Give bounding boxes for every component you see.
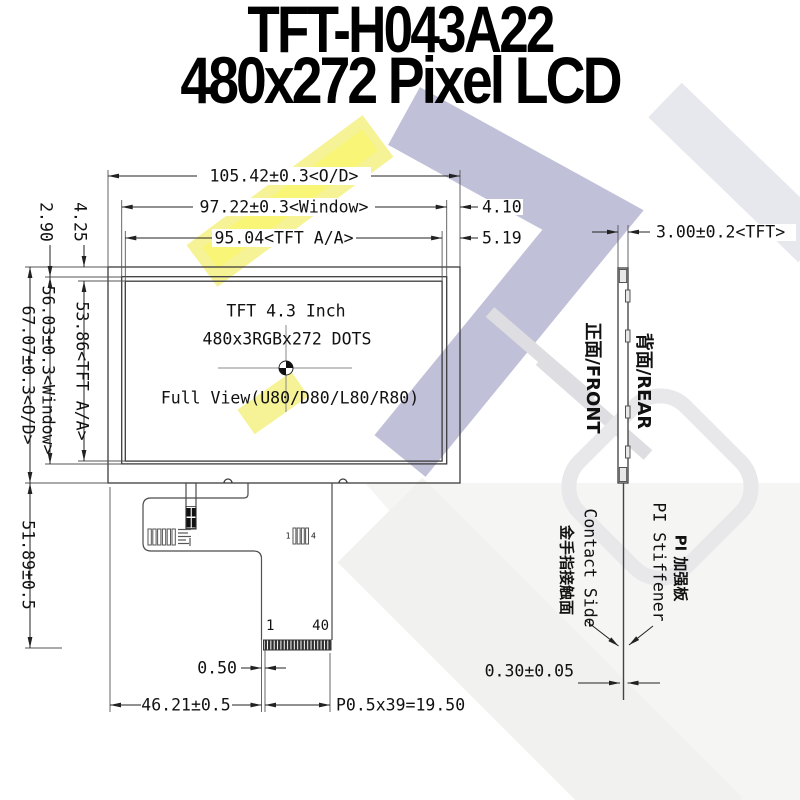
pi-stiffener-label-en: PI Stiffener — [650, 502, 669, 621]
dim-connector-offset: 46.21±0.5 — [141, 696, 230, 715]
pin-1-label: 1 — [266, 618, 274, 634]
fpc-left-outline — [143, 483, 262, 640]
dim-active-width: 95.04<TFT A/A> — [214, 229, 353, 248]
fiducial-last-label: 4 — [311, 532, 316, 541]
fiducial-marks: 1 4 — [286, 528, 316, 544]
dim-thickness: 3.00±0.2<TFT> — [656, 223, 785, 242]
resolution-title: 480x272 Pixel LCD — [12, 52, 788, 110]
dim-window-height: 56.03±0.3<Window> — [39, 286, 58, 455]
display-resolution-text: 480x3RGBx272 DOTS — [203, 330, 372, 349]
contact-side-label-en: Contact Side — [581, 508, 600, 627]
dim-pin-pitch: P0.5x39=19.50 — [336, 696, 465, 715]
fpc-outline — [143, 483, 332, 640]
dim-window-top-margin: 2.90 — [37, 202, 56, 242]
front-side-label: 正面/FRONT — [582, 322, 603, 434]
dim-outline-height: 67.07±0.3<O/D> — [19, 305, 38, 444]
page-title: TFT-H043A22 480x272 Pixel LCD — [0, 4, 800, 106]
contact-side-label-cn: 金手指接触面 — [558, 524, 576, 615]
side-view: 3.00±0.2<TFT> 正面/FRONT 背面/REAR 金手指接触面 Co… — [485, 223, 786, 701]
dim-text-backs — [141, 167, 796, 713]
dim-outline-width: 105.42±0.3<O/D> — [209, 167, 358, 186]
dim-fpc-thickness: 0.30±0.05 — [485, 662, 574, 681]
pi-stiffener-label-cn: PI 加强板 — [672, 535, 690, 603]
display-spec-text: TFT 4.3 Inch 480x3RGBx272 DOTS Full View… — [161, 302, 419, 408]
connector-pins-strip — [264, 640, 332, 650]
dim-pin1-offset: 0.50 — [197, 659, 237, 678]
stack-marks — [178, 530, 191, 547]
barcode-marks — [148, 529, 175, 545]
display-viewing-text: Full View(U80/D80/L80/R80) — [161, 389, 419, 408]
pin-40-label: 40 — [312, 618, 329, 634]
connector: 1 40 — [264, 618, 332, 650]
dim-active-top-margin: 4.25 — [71, 202, 90, 242]
dimension-lines — [30, 176, 660, 705]
cad-drawing: 1 4 1 40 TFT 4.3 Inch 480x3RGBx272 DOTS … — [0, 0, 800, 800]
tab-marks — [186, 507, 196, 529]
dim-active-height: 53.86<TFT A/A> — [73, 301, 92, 440]
rear-side-label: 背面/REAR — [633, 333, 655, 430]
fiducial-first-label: 1 — [286, 532, 291, 541]
dim-window-width: 97.22±0.3<Window> — [200, 198, 369, 217]
dim-window-side-margin: 4.10 — [482, 198, 522, 217]
stiffener-leader — [629, 626, 653, 645]
dim-fpc-length: 51.89±0.5 — [19, 520, 38, 609]
dim-active-side-margin: 5.19 — [482, 229, 522, 248]
display-size-text: TFT 4.3 Inch — [226, 302, 345, 321]
datasheet-drawing: 1 4 1 40 TFT 4.3 Inch 480x3RGBx272 DOTS … — [0, 0, 800, 800]
